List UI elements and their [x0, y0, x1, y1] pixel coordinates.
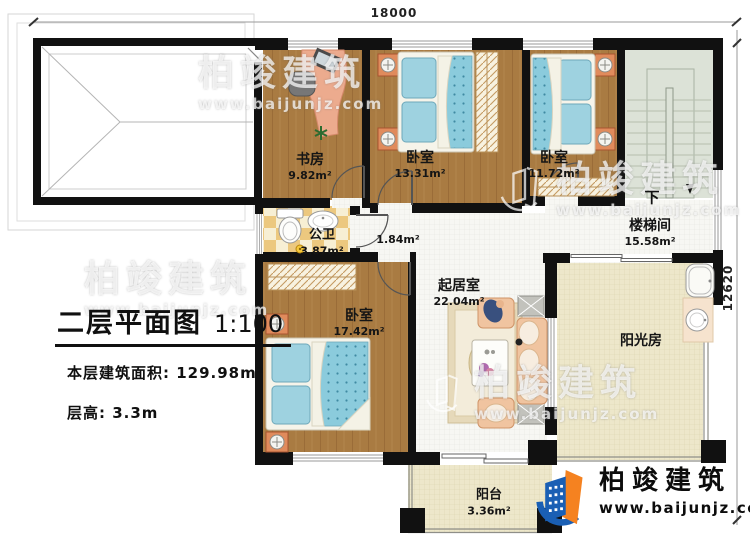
window-bathroom-left: [255, 214, 263, 254]
room-label-stairwell: 楼梯间 15.58m²: [624, 217, 675, 249]
sliding-door-sunroom: [570, 254, 672, 262]
room-label-hallway: 1.84m²: [376, 233, 419, 247]
dimension-top: 18000: [371, 6, 418, 20]
room-label-bedroom1: 卧室 13.31m²: [394, 149, 445, 181]
room-label-bedroom3: 卧室 17.42m²: [333, 307, 384, 339]
toilet-icon: [277, 209, 303, 243]
floor-plan-canvas: 柏竣建筑www.baijunjz.com 柏竣建筑www.baijunjz.co…: [0, 0, 750, 541]
floor-height-text: 层高: 3.3m: [67, 402, 291, 423]
room-label-study: 书房 9.82m²: [288, 151, 331, 183]
room-label-sunroom: 阳光房: [620, 332, 662, 350]
window-bedroom3-bottom: [293, 452, 383, 465]
phone-icon: [516, 339, 523, 346]
plan-scale: 1:100: [214, 310, 283, 338]
plan-title-line: 二层平面图1:100: [55, 301, 291, 347]
floor-plan-drawing: [0, 0, 750, 541]
stair-railing: [666, 88, 673, 198]
room-label-bedroom2: 卧室 11.72m²: [528, 149, 579, 181]
brand-name: 柏竣建筑: [599, 467, 750, 497]
coffee-table: [472, 340, 508, 386]
floor-area-text: 本层建筑面积: 129.98m²: [67, 362, 291, 383]
brand-logo-icon: [534, 467, 590, 529]
title-block: 二层平面图1:100 本层建筑面积: 129.98m² 层高: 3.3m: [55, 301, 291, 423]
window-top-bedroom2: [523, 38, 593, 50]
living-furniture: [448, 296, 547, 428]
sliding-door-balcony: [440, 452, 528, 465]
plan-title: 二层平面图: [57, 308, 202, 339]
window-top-bedroom1: [392, 38, 472, 50]
round-sink-icon: [686, 309, 708, 331]
brand-logo: 柏竣建筑 www.baijunjz.com: [534, 467, 750, 529]
room-label-bathroom: 公卫 3.87m²: [300, 227, 343, 258]
brand-url: www.baijunjz.com: [599, 499, 750, 517]
office-chair: [289, 72, 315, 96]
room-label-balcony: 阳台 3.36m²: [467, 487, 510, 518]
sunroom-fixtures: [683, 264, 714, 342]
room-label-living: 起居室 22.04m²: [433, 277, 484, 309]
stairs-down-label: 下: [644, 187, 659, 208]
bathtub-icon: [686, 264, 714, 297]
sunroom-floor: [557, 263, 703, 460]
roof-plan: [8, 14, 262, 230]
window-top-study: [288, 38, 338, 50]
dimension-right: 12620: [721, 265, 735, 312]
window-right-hall: [713, 170, 723, 250]
